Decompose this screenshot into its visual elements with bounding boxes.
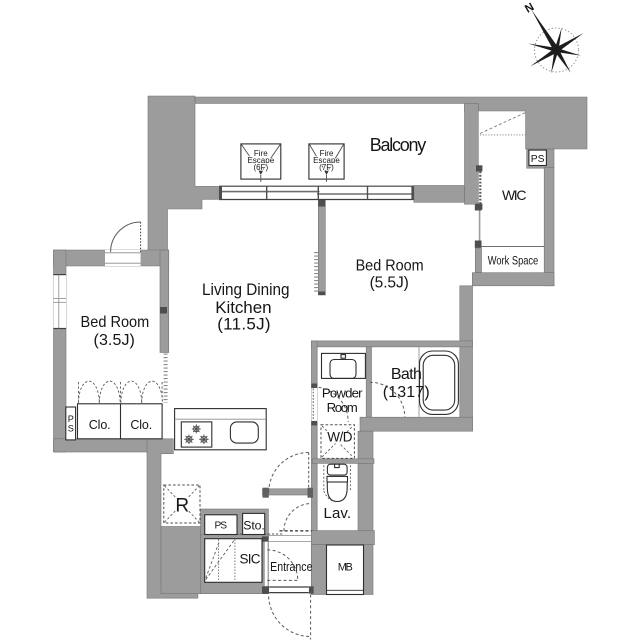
svg-text:Entrance: Entrance bbox=[270, 560, 313, 574]
svg-text:Sto.: Sto. bbox=[243, 519, 265, 533]
svg-text:(11.5J): (11.5J) bbox=[217, 314, 270, 333]
svg-text:PS: PS bbox=[215, 521, 228, 532]
svg-text:SIC: SIC bbox=[240, 552, 261, 567]
svg-text:(3.5J): (3.5J) bbox=[94, 332, 135, 349]
svg-text:R: R bbox=[175, 496, 189, 517]
svg-text:(1317): (1317) bbox=[383, 384, 430, 401]
svg-text:PS: PS bbox=[531, 154, 545, 165]
svg-text:(7F): (7F) bbox=[319, 163, 334, 172]
svg-text:Bed Room: Bed Room bbox=[356, 257, 424, 275]
svg-text:Bath: Bath bbox=[391, 366, 422, 383]
svg-text:(5.5J): (5.5J) bbox=[370, 275, 409, 292]
svg-text:(6F): (6F) bbox=[253, 163, 268, 172]
svg-text:WIC: WIC bbox=[502, 187, 527, 203]
svg-text:P: P bbox=[68, 414, 74, 424]
svg-text:W/D: W/D bbox=[327, 429, 353, 444]
svg-text:Lav.: Lav. bbox=[324, 505, 352, 522]
svg-text:S: S bbox=[68, 423, 74, 433]
svg-text:Work Space: Work Space bbox=[488, 254, 538, 268]
svg-text:Living Dining: Living Dining bbox=[202, 280, 290, 299]
svg-text:Clo.: Clo. bbox=[89, 418, 111, 432]
svg-text:Powder: Powder bbox=[322, 386, 363, 401]
svg-text:Balcony: Balcony bbox=[370, 135, 427, 155]
svg-text:MB: MB bbox=[338, 562, 353, 574]
svg-text:Bed Room: Bed Room bbox=[81, 314, 150, 332]
svg-text:Clo.: Clo. bbox=[130, 418, 152, 432]
svg-text:Room: Room bbox=[327, 400, 358, 415]
